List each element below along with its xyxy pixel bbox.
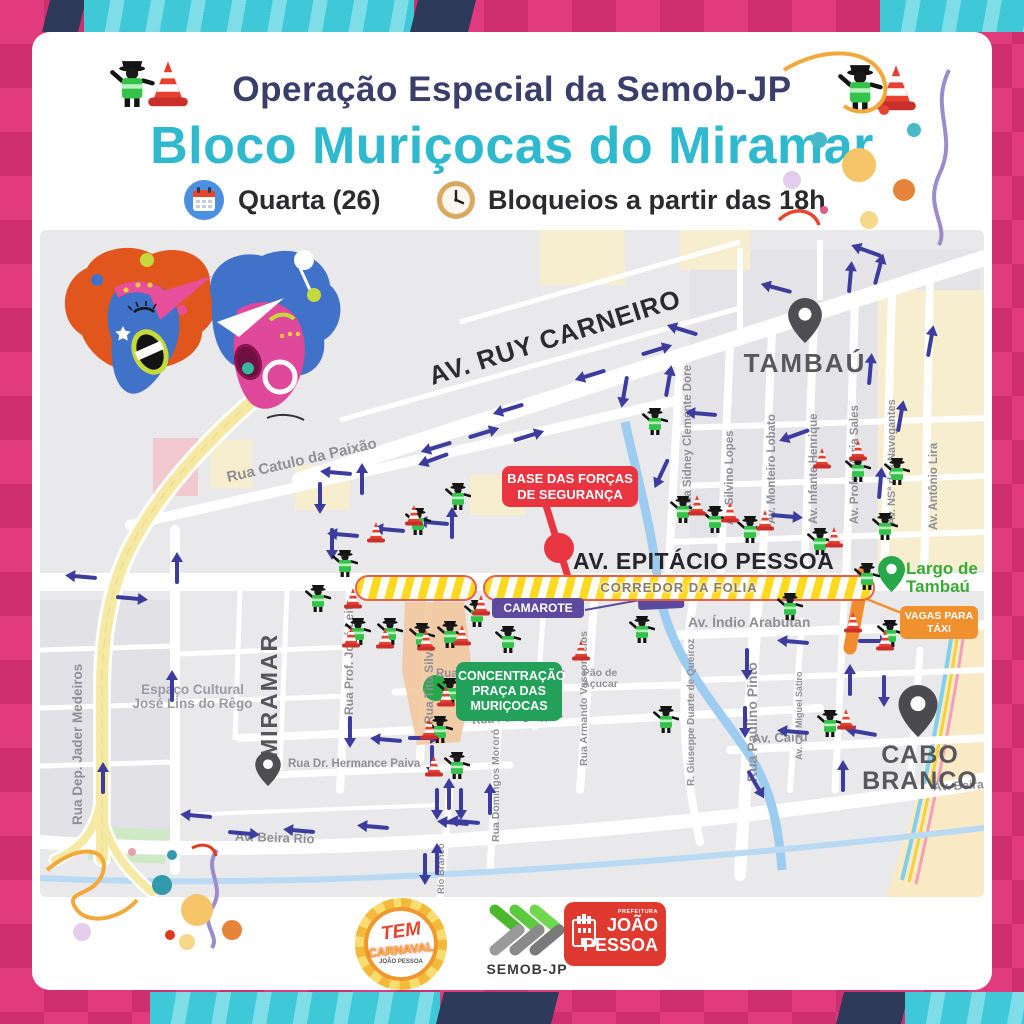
traffic-cone-icon: [375, 627, 395, 649]
direction-arrow-icon: [435, 788, 439, 812]
poster: Operação Especial da Semob-JP Bloco Muri…: [0, 0, 1024, 1024]
corridor-label: CORREDOR DA FOLIA: [485, 580, 873, 595]
street-label: Rua Paulino Pinto: [744, 620, 760, 782]
place-label-pao-de-acucar: Pão deAçucar: [574, 668, 626, 690]
traffic-cone-icon: [471, 594, 491, 616]
direction-arrow-icon: [435, 851, 439, 875]
confetti-decoration: [42, 840, 302, 950]
traffic-cone-icon: [571, 639, 591, 661]
traffic-agent-icon: [629, 613, 655, 643]
direction-arrow-icon: [488, 791, 492, 815]
confetti-decoration: [764, 40, 974, 260]
traffic-cone-icon: [452, 624, 472, 646]
joao-pessoa-logo: PREFEITURA JOÃO PESSOA: [564, 902, 666, 966]
place-label-espaco-cultural: Espaço CulturalJosé Lins do Rêgo: [110, 683, 275, 711]
street-label: Rua Dep. Jader Medeiros: [70, 625, 85, 825]
traffic-cone-icon: [720, 501, 740, 523]
map: CORREDOR DA FOLIA BASE DAS FORÇASDE SEGU…: [40, 230, 984, 897]
traffic-agent-icon: [777, 590, 803, 620]
taxi-badge: VAGAS PARATÁXI: [900, 606, 978, 639]
traffic-cone-icon: [341, 626, 361, 648]
traffic-agent-icon: [495, 623, 521, 653]
street-label: Av. NSª dos Navegantes: [886, 373, 898, 525]
security-base-badge: BASE DAS FORÇASDE SEGURANÇA: [502, 466, 638, 507]
direction-arrow-icon: [175, 560, 179, 584]
direction-arrow-icon: [318, 482, 322, 506]
border-decoration: [410, 0, 476, 32]
date-label: Quarta (26): [238, 185, 381, 216]
traffic-agent-icon: [872, 510, 898, 540]
street-label-epitacio: AV. EPITÁCIO PESSOA: [573, 548, 834, 575]
direction-arrow-icon: [423, 853, 427, 877]
camarote-badge: CAMAROTE: [492, 598, 584, 618]
prefeitura-line1: JOÃO: [607, 915, 658, 936]
place-label-tambau: TAMBAÚ: [735, 350, 875, 377]
carnival-illustration: [52, 240, 352, 440]
direction-arrow-icon: [348, 716, 352, 740]
direction-arrow-icon: [360, 471, 364, 495]
calendar-icon: [184, 180, 224, 220]
traffic-cone-icon: [424, 755, 444, 777]
traffic-cone-icon: [416, 629, 436, 651]
traffic-agent-icon: [884, 455, 910, 485]
border-decoration: [836, 992, 909, 1024]
traffic-cone-icon: [843, 611, 863, 633]
location-pin-icon: [255, 752, 281, 786]
direction-arrow-icon: [459, 788, 463, 812]
location-pin-icon: [788, 298, 822, 343]
border-decoration: [436, 992, 559, 1024]
direction-arrow-icon: [745, 648, 749, 672]
folia-corridor-segment: [355, 575, 477, 601]
direction-arrow-icon: [170, 678, 174, 702]
traffic-cone-icon: [836, 708, 856, 730]
traffic-cone-icon: [343, 587, 363, 609]
direction-arrow-icon: [743, 706, 747, 730]
location-pin-icon: [878, 556, 905, 592]
concentration-badge: CONCENTRAÇÃOPRAÇA DASMURIÇOCAS: [456, 662, 562, 721]
location-pin-icon: [898, 685, 938, 737]
traffic-cone-icon: [848, 439, 868, 461]
direction-arrow-icon: [447, 786, 451, 810]
street-label: Rua Dr. Hermance Paiva: [288, 758, 420, 770]
street-label: Rua Sidney Clemente Dore: [682, 360, 694, 512]
traffic-cone-icon: [687, 494, 707, 516]
traffic-cone-icon: [366, 521, 386, 543]
street-label: R. Giuseppe Duarte de Queiroz: [686, 618, 697, 786]
tem-carnaval-sub: JOÃO PESSOA: [368, 959, 434, 965]
direction-arrow-icon: [101, 770, 105, 794]
direction-arrow-icon: [848, 672, 852, 696]
traffic-cone-icon: [404, 504, 424, 526]
border-decoration: [905, 992, 1024, 1024]
traffic-cone-icon: [812, 447, 832, 469]
place-label-cabo-branco: CABOBRANCO: [850, 742, 984, 795]
street-label: Av. Monteiro Lobato: [766, 400, 778, 524]
traffic-cone-icon: [436, 685, 456, 707]
traffic-agent-icon: [854, 560, 880, 590]
traffic-cone-icon: [875, 629, 895, 651]
prefeitura-line2: PESSOA: [583, 935, 658, 956]
direction-arrow-icon: [450, 515, 454, 539]
content-card: Operação Especial da Semob-JP Bloco Muri…: [32, 32, 992, 990]
border-decoration: [150, 992, 440, 1024]
traffic-agent-icon: [642, 405, 668, 435]
traffic-agent-icon: [444, 749, 470, 779]
border-decoration: [880, 0, 1024, 32]
place-label-largo-tambau: Largo deTambaú: [906, 560, 984, 596]
border-decoration: [84, 0, 414, 32]
traffic-agent-icon: [332, 547, 358, 577]
direction-arrow-icon: [882, 675, 886, 699]
traffic-cone-icon: [755, 509, 775, 531]
traffic-cone-icon: [824, 526, 844, 548]
traffic-cone-icon: [419, 718, 439, 740]
direction-arrow-icon: [841, 768, 845, 792]
tem-carnaval-logo: TEM CARNAVAL JOÃO PESSOA: [355, 898, 447, 990]
street-label: Av. Antônio Lira: [928, 408, 940, 530]
traffic-agent-icon: [445, 480, 471, 510]
traffic-agent-icon: [305, 582, 331, 612]
traffic-agent-icon: [653, 703, 679, 733]
clock-icon: [436, 180, 476, 220]
